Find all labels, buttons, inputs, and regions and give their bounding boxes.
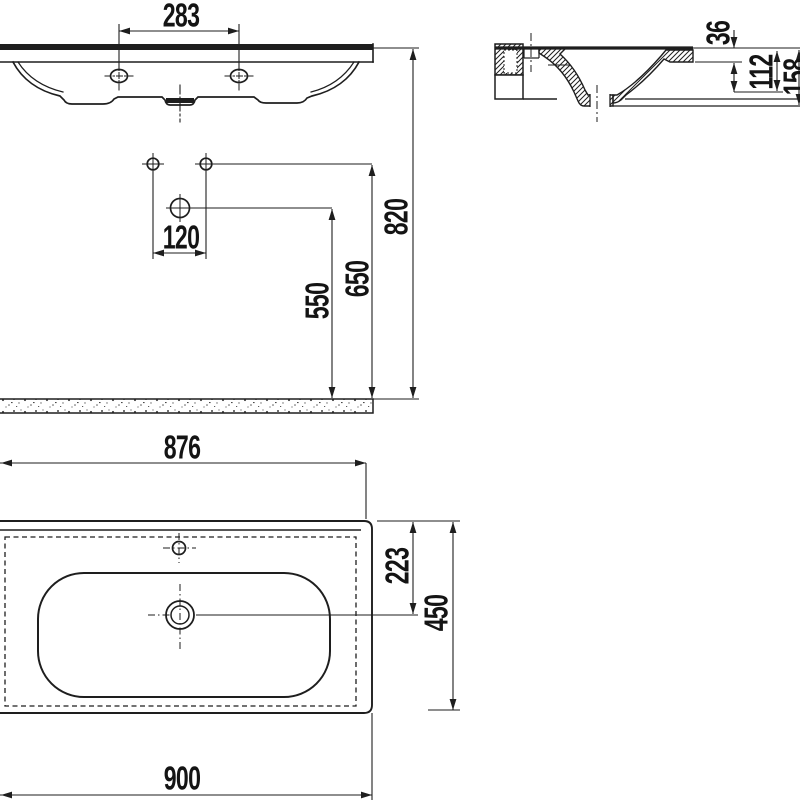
dim-label-223: 223 bbox=[379, 548, 416, 584]
dim-label-820: 820 bbox=[378, 199, 415, 235]
dim-label-120: 120 bbox=[163, 219, 199, 256]
side-drain-opening bbox=[590, 94, 610, 107]
side-fixing-channel bbox=[504, 50, 517, 73]
side-wall-block-lower bbox=[495, 75, 523, 99]
washbasin-drawing: 283 120 550 650 bbox=[0, 0, 800, 800]
dim-label-550: 550 bbox=[299, 283, 336, 319]
dim-label-36: 36 bbox=[700, 21, 737, 45]
dim-label-283: 283 bbox=[163, 0, 199, 35]
dim-label-650: 650 bbox=[339, 261, 376, 297]
dim-label-158: 158 bbox=[777, 59, 800, 95]
dim-label-450: 450 bbox=[418, 595, 455, 631]
dim-label-112: 112 bbox=[743, 54, 780, 89]
dim-label-900: 900 bbox=[164, 760, 200, 797]
dim-label-876: 876 bbox=[164, 429, 200, 466]
front-rim-top-edge bbox=[0, 44, 373, 50]
floor-hatch bbox=[0, 399, 419, 413]
technical-drawing-page: 283 120 550 650 bbox=[0, 0, 800, 800]
